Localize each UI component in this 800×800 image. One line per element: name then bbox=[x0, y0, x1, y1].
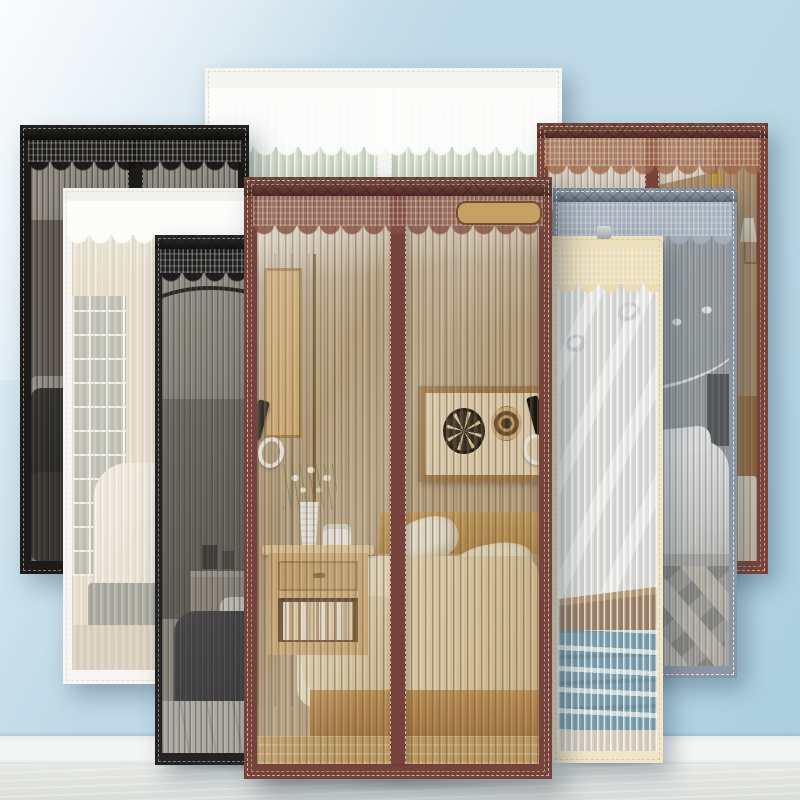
top-band bbox=[205, 68, 562, 88]
top-band bbox=[537, 123, 768, 138]
wardrobe-panel bbox=[264, 268, 302, 438]
top-band bbox=[63, 188, 253, 201]
lace-valance bbox=[558, 200, 732, 236]
blue-rug bbox=[558, 630, 657, 734]
lace-valance bbox=[210, 83, 557, 147]
decor-plate-gold bbox=[491, 406, 522, 441]
top-band bbox=[20, 125, 249, 140]
drawer-handle bbox=[313, 573, 325, 578]
lace-window-cutout bbox=[456, 201, 542, 225]
wall-lamp-bracket bbox=[744, 242, 757, 264]
product-collage bbox=[0, 0, 800, 800]
screen-door-coffee-main bbox=[244, 177, 552, 779]
lace-valance bbox=[545, 136, 760, 166]
wood-furniture bbox=[734, 396, 757, 480]
lace-valance bbox=[555, 246, 660, 284]
top-band bbox=[553, 188, 737, 202]
wall-streaks bbox=[558, 248, 657, 608]
center-divider bbox=[390, 196, 406, 764]
photo-frame bbox=[202, 545, 217, 569]
decor-plate-dark bbox=[443, 408, 485, 454]
screen-door-beige bbox=[552, 236, 663, 763]
door-scene bbox=[558, 248, 657, 751]
books bbox=[283, 602, 353, 640]
floor bbox=[558, 730, 657, 751]
lace-valance bbox=[67, 199, 249, 235]
photo-frame bbox=[222, 551, 234, 569]
mounting-clip bbox=[597, 226, 611, 239]
lace-valance bbox=[28, 138, 241, 162]
wall-lamp-shade bbox=[740, 218, 757, 242]
top-band bbox=[244, 177, 552, 196]
